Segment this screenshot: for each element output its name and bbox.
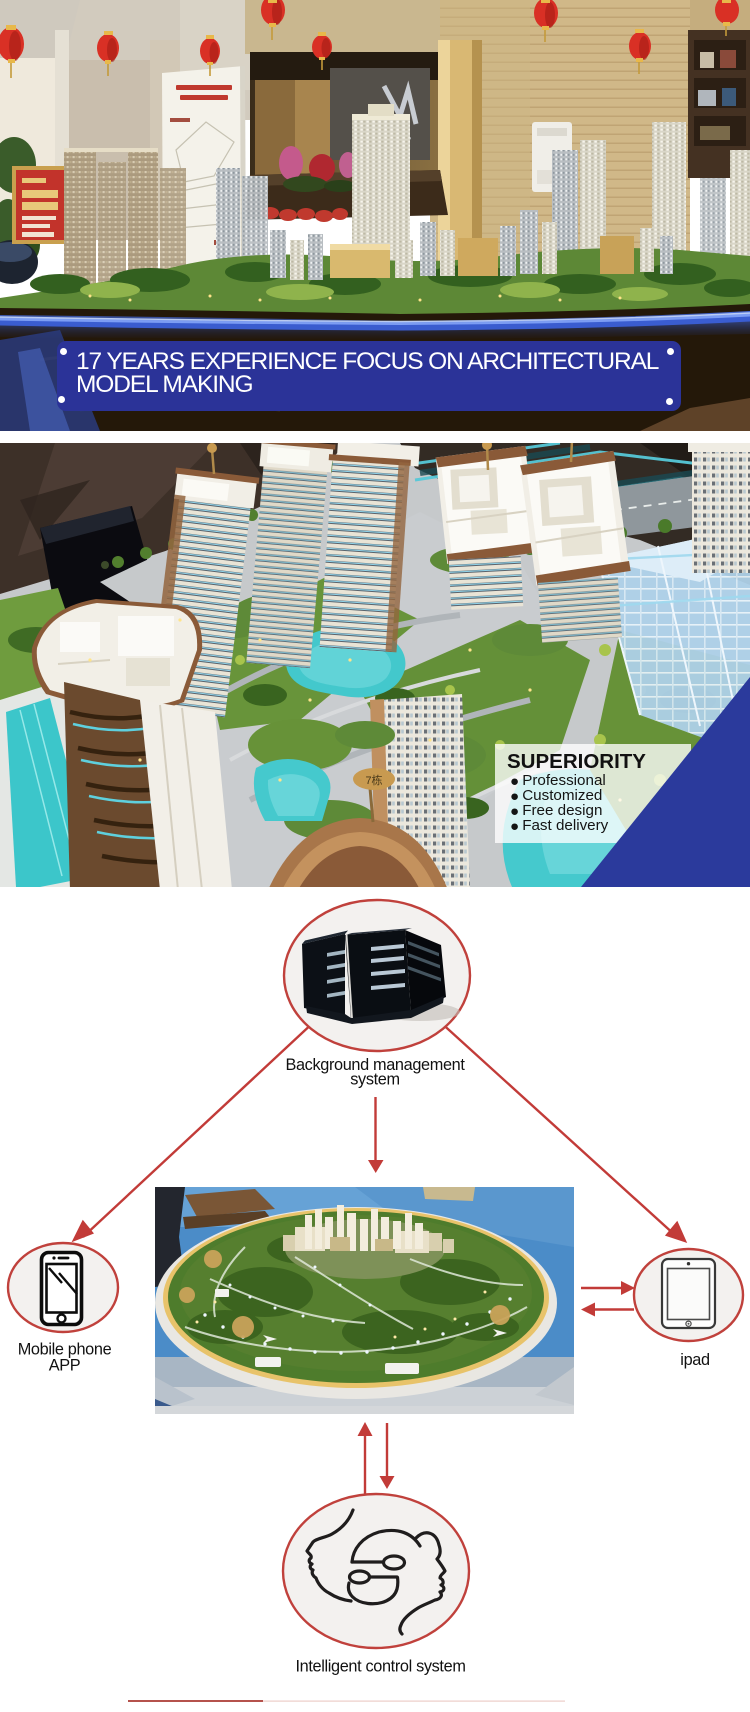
svg-text:APP: APP bbox=[49, 1357, 81, 1375]
svg-text:ipad: ipad bbox=[680, 1351, 709, 1369]
svg-text:SUPERIORITY: SUPERIORITY bbox=[507, 750, 646, 773]
svg-text:7栋: 7栋 bbox=[365, 773, 382, 787]
svg-text:Intelligent control system: Intelligent control system bbox=[295, 1658, 465, 1676]
svg-text:●Fast delivery: ●Fast delivery bbox=[510, 817, 609, 835]
svg-text:system: system bbox=[350, 1071, 399, 1089]
